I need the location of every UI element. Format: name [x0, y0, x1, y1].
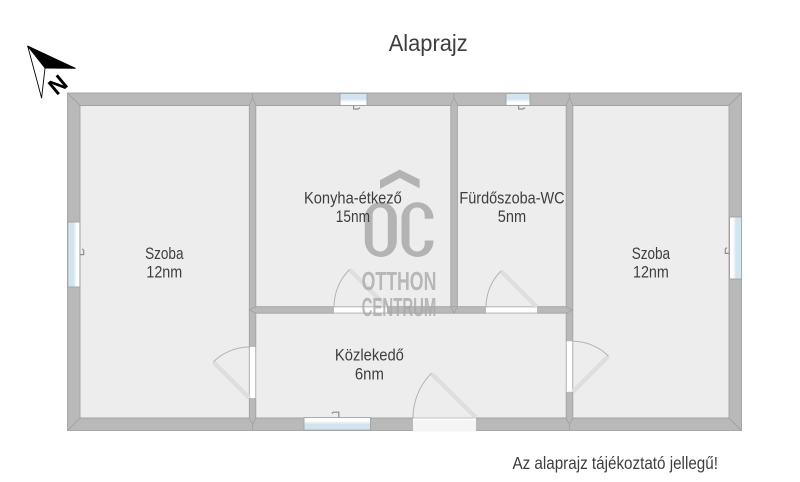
- svg-text:Közlekedő: Közlekedő: [335, 346, 404, 364]
- svg-text:OTTHON: OTTHON: [362, 268, 437, 296]
- svg-text:Konyha-étkező: Konyha-étkező: [304, 189, 402, 207]
- svg-text:Alaprajz: Alaprajz: [389, 30, 468, 56]
- svg-text:CENTRUM: CENTRUM: [362, 294, 437, 322]
- svg-text:6nm: 6nm: [355, 365, 384, 383]
- svg-text:12nm: 12nm: [146, 264, 182, 282]
- svg-text:12nm: 12nm: [633, 264, 669, 282]
- svg-text:5nm: 5nm: [498, 208, 526, 226]
- svg-text:Fürdőszoba-WC: Fürdőszoba-WC: [459, 189, 564, 207]
- svg-text:Szoba: Szoba: [632, 245, 670, 263]
- svg-text:15nm: 15nm: [336, 208, 370, 226]
- svg-text:Szoba: Szoba: [145, 245, 183, 263]
- svg-text:Az alaprajz tájékoztató jelleg: Az alaprajz tájékoztató jellegű!: [512, 453, 718, 473]
